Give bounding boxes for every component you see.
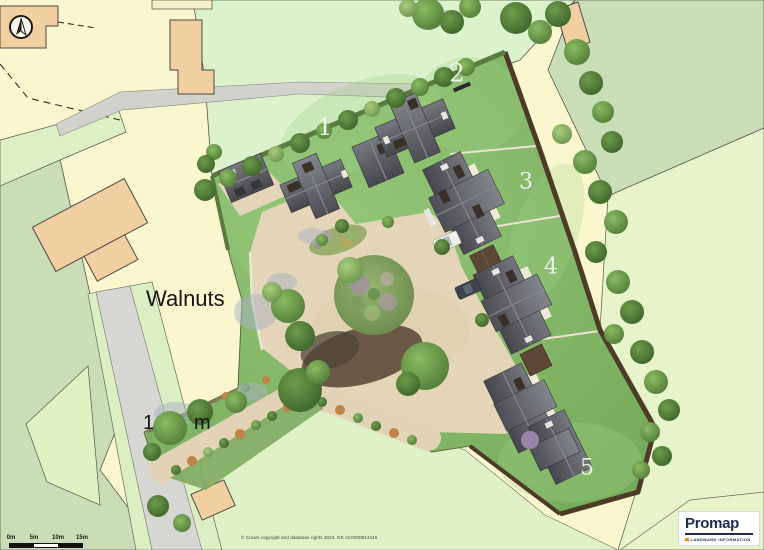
property-label-walnuts: Walnuts: [146, 286, 225, 312]
site-plan-map: [0, 0, 764, 550]
scale-segment: [10, 544, 34, 547]
promap-logo: Promap LANDMARK INFORMATION: [678, 511, 760, 546]
promap-tagline: LANDMARK INFORMATION: [685, 537, 753, 542]
promap-site-plan: Walnuts 1 m 1 2 3 4 5 0m 5m 10m 15m © Cr…: [0, 0, 764, 550]
promap-brand-text: Promap: [685, 516, 753, 531]
scale-segment: [58, 544, 82, 547]
scale-tick: 10m: [52, 535, 64, 541]
plot-number-3: 3: [519, 170, 533, 195]
scale-tick: 0m: [7, 535, 16, 541]
plot-number-1: 1: [317, 113, 332, 141]
scale-tick: 5m: [30, 535, 39, 541]
scale-tick-labels: 0m 5m 10m 15m: [6, 535, 92, 542]
copyright-attribution: © Crown copyright and database rights 20…: [241, 535, 377, 540]
scale-tick: 15m: [76, 535, 88, 541]
scale-segment: [34, 544, 58, 547]
obscured-label-left: 1: [143, 412, 154, 435]
landmark-dot-icon: [685, 538, 689, 542]
scale-bar: 0m 5m 10m 15m: [6, 535, 92, 548]
scale-bar-segments: [9, 543, 83, 548]
obscured-label-right: m: [194, 412, 211, 435]
promap-underline: [685, 533, 753, 536]
plot-number-2: 2: [449, 59, 465, 88]
north-arrow-icon: [10, 16, 32, 38]
plot-number-5: 5: [580, 456, 594, 481]
plot-number-4: 4: [544, 255, 558, 280]
landmark-tagline-text: LANDMARK INFORMATION: [691, 537, 751, 542]
